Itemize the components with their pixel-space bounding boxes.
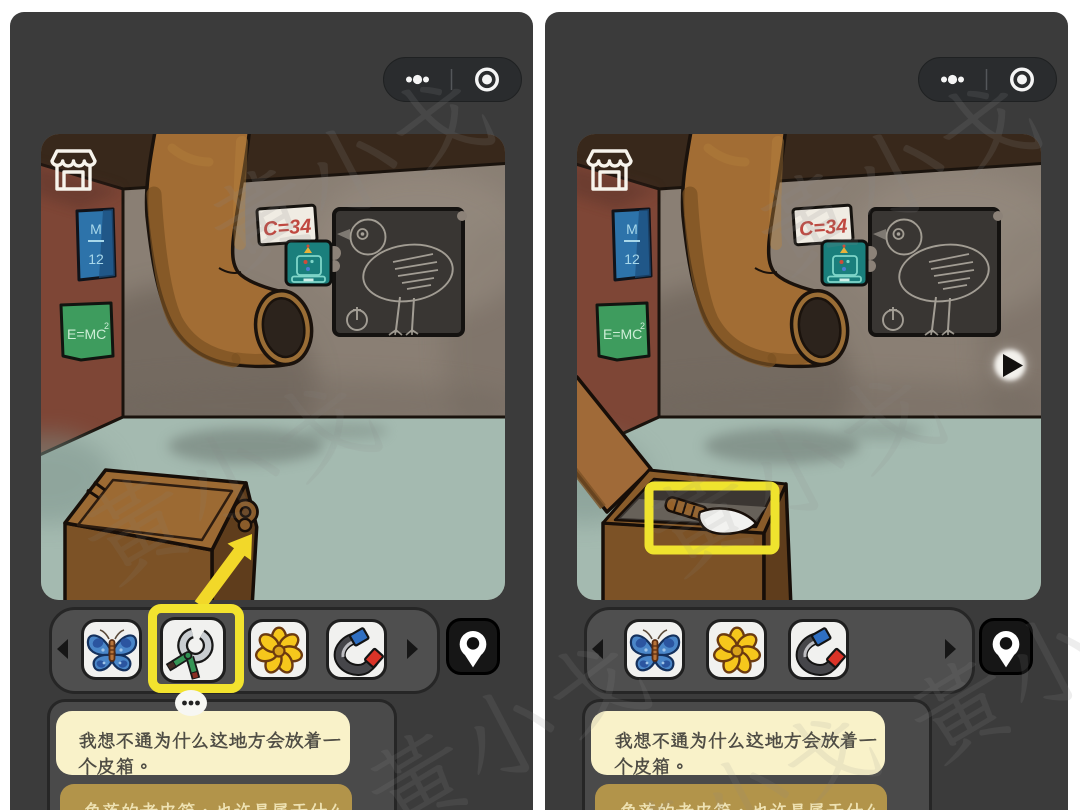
svg-text:E=MC: E=MC <box>603 326 642 342</box>
svg-text:12: 12 <box>88 251 104 267</box>
svg-text:C=34: C=34 <box>798 215 848 240</box>
svg-text:C=34: C=34 <box>262 215 312 240</box>
svg-text:M: M <box>626 221 638 237</box>
svg-text:2: 2 <box>104 321 109 331</box>
svg-text:12: 12 <box>624 251 640 267</box>
svg-text:E=MC: E=MC <box>67 326 106 342</box>
svg-text:M: M <box>90 221 102 237</box>
svg-text:2: 2 <box>640 321 645 331</box>
